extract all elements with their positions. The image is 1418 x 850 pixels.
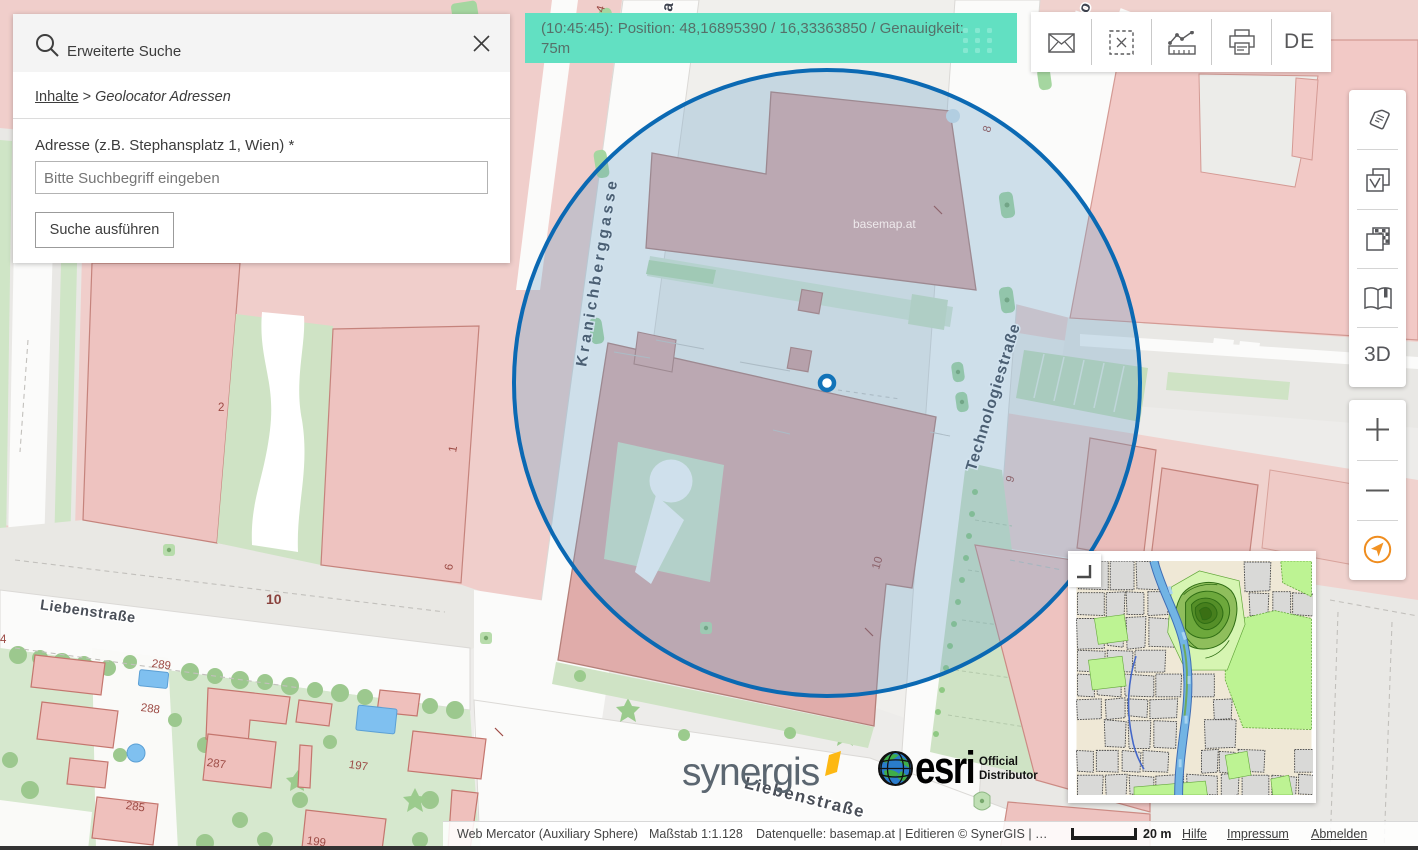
svg-text:esri: esri [915, 749, 974, 789]
svg-text:4: 4 [0, 634, 7, 646]
svg-text:10: 10 [266, 591, 282, 607]
svg-text:2: 2 [218, 402, 224, 414]
svg-text:basemap.at: basemap.at [853, 217, 916, 231]
